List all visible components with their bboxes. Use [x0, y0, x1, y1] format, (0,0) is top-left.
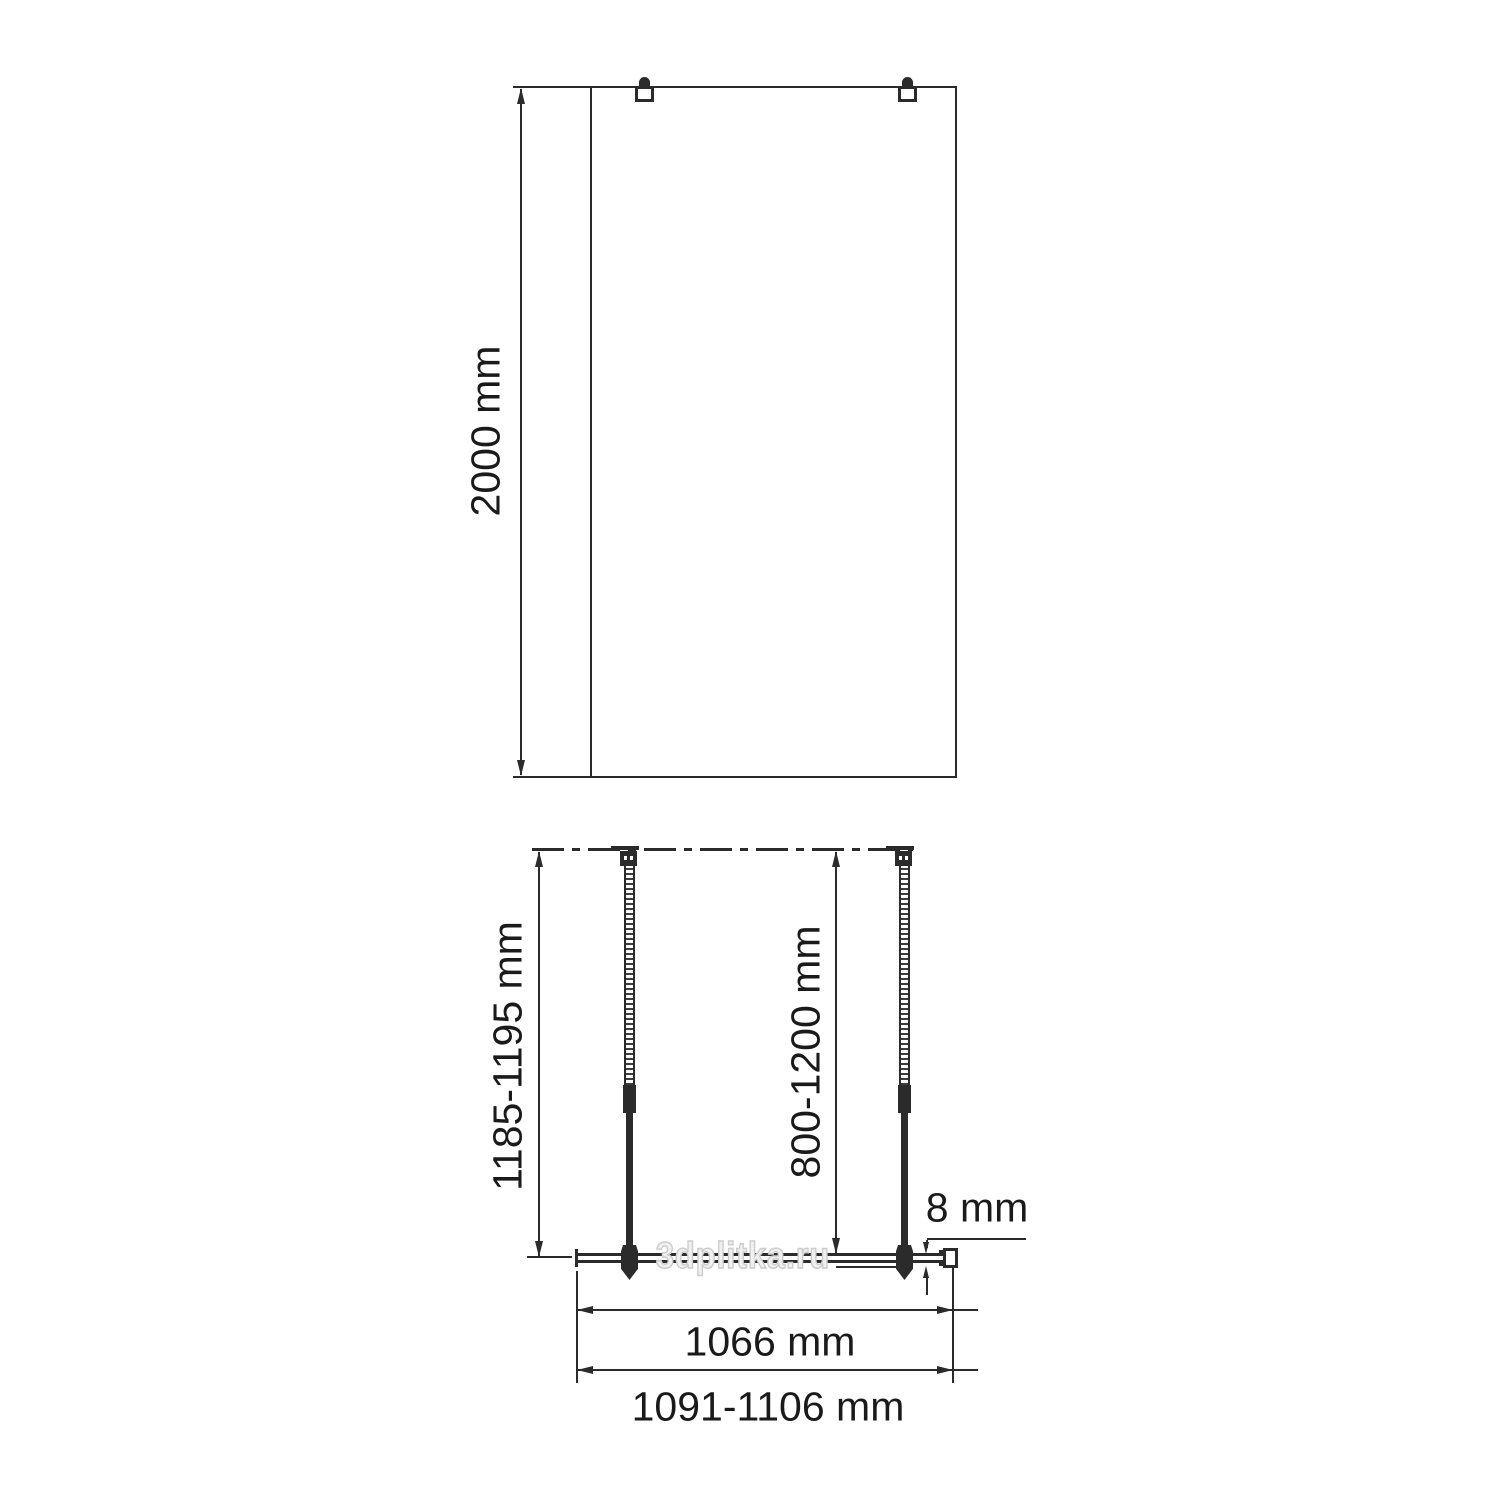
bar-wall-cap: [620, 851, 637, 866]
wall-profile-cap: [943, 1248, 958, 1268]
offset-ext-line: [527, 1256, 572, 1258]
profile-tooth: [939, 1250, 943, 1254]
bracket-body-icon: [898, 86, 917, 102]
support-tube: [901, 1113, 908, 1248]
bar-dim-arrow-bottom: [832, 1238, 840, 1254]
height-dim-arrow-bottom: [517, 760, 525, 776]
width-dim-label: 1066 mm: [685, 1322, 856, 1363]
height-dim-arrow-top: [517, 88, 525, 104]
overall-dim-label: 1091-1106 mm: [632, 1387, 905, 1428]
bar-dim-label: 800-1200 mm: [786, 926, 827, 1179]
thickness-dim-label: 8 mm: [926, 1188, 1029, 1229]
thickness-tail: [926, 1277, 928, 1295]
height-ext-line-bottom: [513, 776, 592, 778]
bracket-body-icon: [635, 86, 654, 102]
adjuster-sleeve: [623, 1085, 636, 1113]
width-dim-arrow-left: [577, 1306, 593, 1314]
wall-centerline: [532, 848, 913, 851]
bar-dim-arrow-top: [832, 851, 840, 867]
thickness-arrow-down: [923, 1242, 929, 1254]
cap-notch: [624, 856, 627, 860]
height-dim-label: 2000 mm: [466, 346, 507, 517]
adjuster-sleeve: [898, 1085, 911, 1113]
threaded-rod: [624, 866, 635, 1085]
site-watermark: 3dplitka.ru: [656, 1235, 830, 1277]
glass-left-tick: [575, 1249, 578, 1267]
bar-wall-cap: [895, 851, 912, 866]
cap-notch: [899, 856, 902, 860]
width-dim-arrow-right: [937, 1306, 953, 1314]
offset-dim-arrow-bottom: [535, 1241, 543, 1257]
support-tube: [626, 1113, 633, 1248]
thickness-leader-h: [927, 1238, 1026, 1240]
profile-tooth: [939, 1262, 943, 1266]
overall-dim-arrow-right: [937, 1366, 953, 1374]
overall-dim-line: [578, 1369, 978, 1371]
bar-dim-line: [835, 852, 837, 1254]
glass-panel-front: [590, 86, 957, 778]
shower-screen-dimension-diagram: 2000 mm: [0, 0, 1500, 1500]
overall-dim-arrow-left: [577, 1366, 593, 1374]
cap-notch: [905, 856, 908, 860]
offset-dim-line: [538, 852, 540, 1256]
threaded-rod: [899, 866, 910, 1085]
cap-notch: [630, 856, 633, 860]
glass-under-line: [836, 1266, 897, 1268]
offset-dim-arrow-top: [535, 851, 543, 867]
offset-dim-label: 1185-1195 mm: [488, 921, 529, 1191]
width-dim-line: [578, 1309, 978, 1311]
bar-wall-cap-flange: [611, 846, 639, 850]
height-dim-line: [520, 89, 522, 775]
bar-wall-cap-flange: [886, 846, 914, 850]
